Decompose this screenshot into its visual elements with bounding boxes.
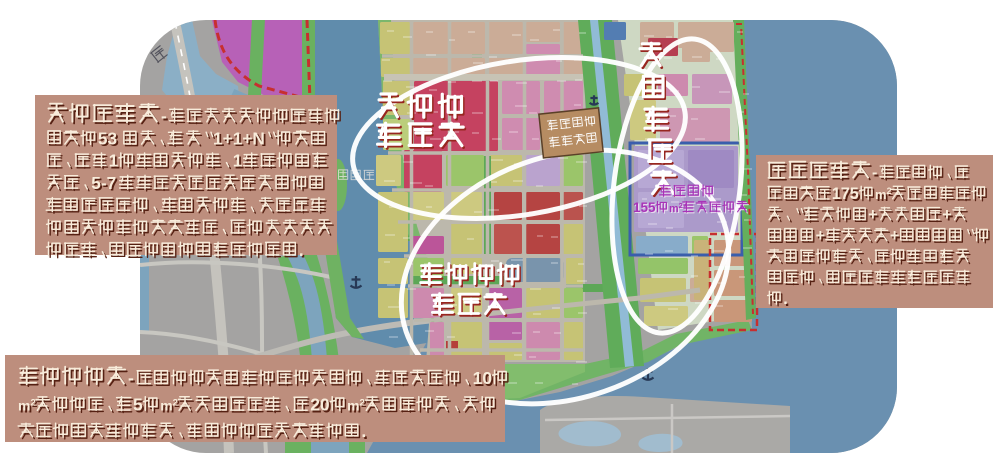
svg-text:53: 53 xyxy=(98,128,117,148)
svg-text:1: 1 xyxy=(109,151,119,171)
svg-text:+: + xyxy=(868,206,877,224)
svg-text:5-7: 5-7 xyxy=(91,173,116,193)
svg-text:.: . xyxy=(361,421,366,441)
svg-text:155: 155 xyxy=(633,200,656,215)
svg-text:10: 10 xyxy=(473,368,493,388)
svg-text:+: + xyxy=(816,227,825,245)
svg-text:.: . xyxy=(299,240,304,260)
svg-text:1: 1 xyxy=(233,151,243,171)
svg-text:20: 20 xyxy=(310,395,330,415)
svg-text:.: . xyxy=(783,290,788,308)
svg-text:+: + xyxy=(890,227,899,245)
svg-text:5: 5 xyxy=(133,395,143,415)
svg-text:-: - xyxy=(872,164,877,182)
svg-text:1+1+N: 1+1+N xyxy=(213,128,265,148)
svg-text:-: - xyxy=(161,106,167,126)
svg-text:-: - xyxy=(128,368,134,388)
svg-text:175: 175 xyxy=(832,185,859,203)
svg-text:+: + xyxy=(942,206,951,224)
